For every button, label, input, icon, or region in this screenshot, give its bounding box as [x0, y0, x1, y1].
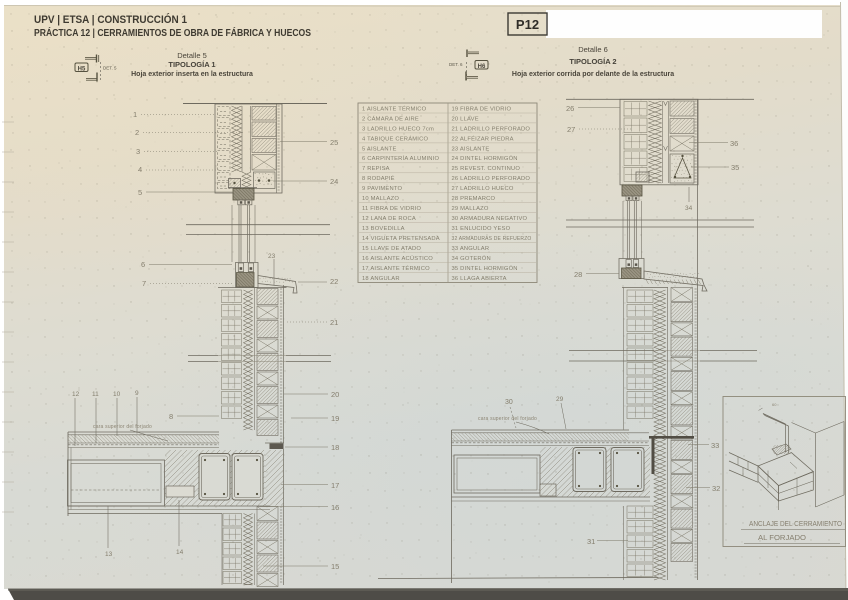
svg-text:20 LLAVE: 20 LLAVE [452, 116, 479, 122]
svg-text:6: 6 [141, 260, 145, 269]
svg-text:13: 13 [105, 551, 113, 558]
svg-text:7: 7 [142, 279, 146, 288]
svg-text:16: 16 [331, 503, 339, 512]
svg-text:Hoja exterior corrida por dela: Hoja exterior corrida por delante de la … [512, 71, 674, 78]
svg-text:15: 15 [331, 562, 339, 571]
svg-text:14: 14 [176, 549, 184, 556]
svg-text:8 RODAPIÉ: 8 RODAPIÉ [362, 175, 395, 182]
svg-text:1: 1 [133, 110, 137, 119]
svg-text:34: 34 [685, 205, 693, 212]
svg-text:30: 30 [505, 399, 513, 406]
svg-text:cara superior del forjado: cara superior del forjado [478, 416, 537, 422]
svg-text:P12: P12 [516, 17, 539, 32]
svg-text:Detalle 6: Detalle 6 [578, 45, 608, 54]
svg-text:23: 23 [268, 253, 276, 260]
svg-text:5: 5 [138, 188, 142, 197]
svg-text:36 LLAGA ABIERTA: 36 LLAGA ABIERTA [452, 276, 507, 282]
svg-text:18 ANGULAR: 18 ANGULAR [362, 276, 400, 282]
svg-text:Detalle 5: Detalle 5 [177, 51, 207, 60]
svg-text:20: 20 [331, 390, 339, 399]
svg-text:AL FORJADO: AL FORJADO [758, 535, 807, 542]
svg-text:4 TABIQUE CERÁMICO: 4 TABIQUE CERÁMICO [362, 135, 428, 142]
svg-text:32: 32 [712, 484, 720, 493]
svg-text:5 AISLANTE: 5 AISLANTE [362, 146, 397, 152]
svg-text:8: 8 [169, 412, 173, 421]
svg-text:27 LADRILLO HUECO: 27 LADRILLO HUECO [452, 186, 514, 192]
svg-text:33 ANGULAR: 33 ANGULAR [452, 246, 490, 252]
svg-text:2 CÁMARA DE AIRE: 2 CÁMARA DE AIRE [362, 115, 419, 122]
svg-text:2: 2 [135, 128, 139, 137]
svg-text:Hoja exterior inserta en la es: Hoja exterior inserta en la estructura [131, 71, 253, 78]
svg-text:22: 22 [330, 277, 338, 286]
svg-text:60: 60 [772, 402, 777, 407]
svg-text:25 REVEST. CONTINUO: 25 REVEST. CONTINUO [452, 166, 521, 172]
svg-text:13 BOVEDILLA: 13 BOVEDILLA [362, 226, 405, 232]
svg-text:33: 33 [711, 441, 719, 450]
svg-text:24 DINTEL HORMIGÓN: 24 DINTEL HORMIGÓN [452, 155, 518, 162]
svg-text:17: 17 [331, 481, 339, 490]
svg-text:23 AISLANTE: 23 AISLANTE [452, 146, 490, 152]
svg-text:12 LANA DE ROCA: 12 LANA DE ROCA [362, 216, 416, 222]
svg-text:35: 35 [731, 163, 739, 172]
svg-text:27: 27 [567, 125, 575, 134]
svg-text:36: 36 [730, 139, 738, 148]
svg-text:TIPOLOGÍA 1: TIPOLOGÍA 1 [168, 60, 215, 69]
svg-text:29 MALLAZO: 29 MALLAZO [452, 206, 489, 212]
svg-text:4: 4 [138, 165, 142, 174]
svg-text:22 ALFÉIZAR PIEDRA: 22 ALFÉIZAR PIEDRA [452, 135, 514, 142]
svg-text:3 LADRILLO HUECO 7cm: 3 LADRILLO HUECO 7cm [362, 126, 434, 132]
svg-text:30 ARMADURA NEGATIVO: 30 ARMADURA NEGATIVO [452, 216, 528, 222]
svg-text:32 ARMADURAS DE REFUERZO: 32 ARMADURAS DE REFUERZO [452, 236, 532, 242]
svg-text:21: 21 [330, 318, 338, 327]
svg-text:1 AISLANTE TÉRMICO: 1 AISLANTE TÉRMICO [362, 105, 427, 112]
svg-text:10: 10 [113, 391, 121, 398]
svg-text:16 AISLANTE ACÚSTICO: 16 AISLANTE ACÚSTICO [362, 255, 433, 262]
svg-text:28 PREMARCO: 28 PREMARCO [452, 196, 496, 202]
svg-text:PRÁCTICA 12 | CERRAMIENTOS DE: PRÁCTICA 12 | CERRAMIENTOS DE OBRA DE FÁ… [34, 26, 311, 39]
svg-text:26: 26 [566, 104, 574, 113]
svg-text:cara superior del forjado: cara superior del forjado [93, 424, 152, 430]
svg-text:9 PAVIMENTO: 9 PAVIMENTO [362, 186, 403, 192]
svg-text:9: 9 [135, 390, 139, 397]
svg-text:19: 19 [331, 414, 339, 423]
svg-text:6 CARPINTERÍA ALUMINIO: 6 CARPINTERÍA ALUMINIO [362, 155, 439, 162]
svg-text:DET. 5: DET. 5 [103, 66, 117, 71]
svg-text:ANCLAJE DEL CERRAMIENTO: ANCLAJE DEL CERRAMIENTO [749, 521, 843, 528]
svg-text:TIPOLOGÍA 2: TIPOLOGÍA 2 [569, 57, 616, 66]
svg-text:7 REPISA: 7 REPISA [362, 166, 390, 172]
svg-text:12: 12 [72, 391, 80, 398]
svg-text:10 MALLAZO: 10 MALLAZO [362, 196, 399, 202]
svg-text:UPV | ETSA | CONSTRUCCIÓN 1: UPV | ETSA | CONSTRUCCIÓN 1 [34, 13, 187, 26]
svg-text:26 LADRILLO PERFORADO: 26 LADRILLO PERFORADO [452, 176, 531, 182]
svg-text:28: 28 [574, 270, 582, 279]
svg-text:31 ENLUCIDO YESO: 31 ENLUCIDO YESO [452, 226, 511, 232]
svg-text:17 AISLANTE TÉRMICO: 17 AISLANTE TÉRMICO [362, 265, 430, 272]
svg-text:14 VIGUETA PRETENSADA: 14 VIGUETA PRETENSADA [362, 236, 440, 242]
svg-text:11 FIBRA DE VIDRIO: 11 FIBRA DE VIDRIO [362, 206, 422, 212]
svg-text:18: 18 [331, 443, 339, 452]
svg-text:25: 25 [330, 138, 338, 147]
svg-text:35 DINTEL HORMIGÓN: 35 DINTEL HORMIGÓN [452, 265, 518, 272]
svg-text:11: 11 [92, 391, 99, 398]
svg-text:19 FIBRA DE VIDRIO: 19 FIBRA DE VIDRIO [452, 106, 512, 112]
svg-text:24: 24 [330, 177, 338, 186]
svg-text:15 LLAVE DE ATADO: 15 LLAVE DE ATADO [362, 246, 421, 252]
svg-text:31: 31 [587, 537, 595, 546]
svg-text:34 GOTERÓN: 34 GOTERÓN [452, 255, 491, 262]
svg-text:DET. 6: DET. 6 [449, 62, 463, 67]
svg-text:H5: H5 [78, 66, 86, 72]
svg-text:3: 3 [136, 147, 140, 156]
svg-text:29: 29 [556, 396, 564, 403]
svg-text:H6: H6 [478, 64, 486, 70]
svg-text:21 LADRILLO PERFORADO: 21 LADRILLO PERFORADO [452, 126, 531, 132]
